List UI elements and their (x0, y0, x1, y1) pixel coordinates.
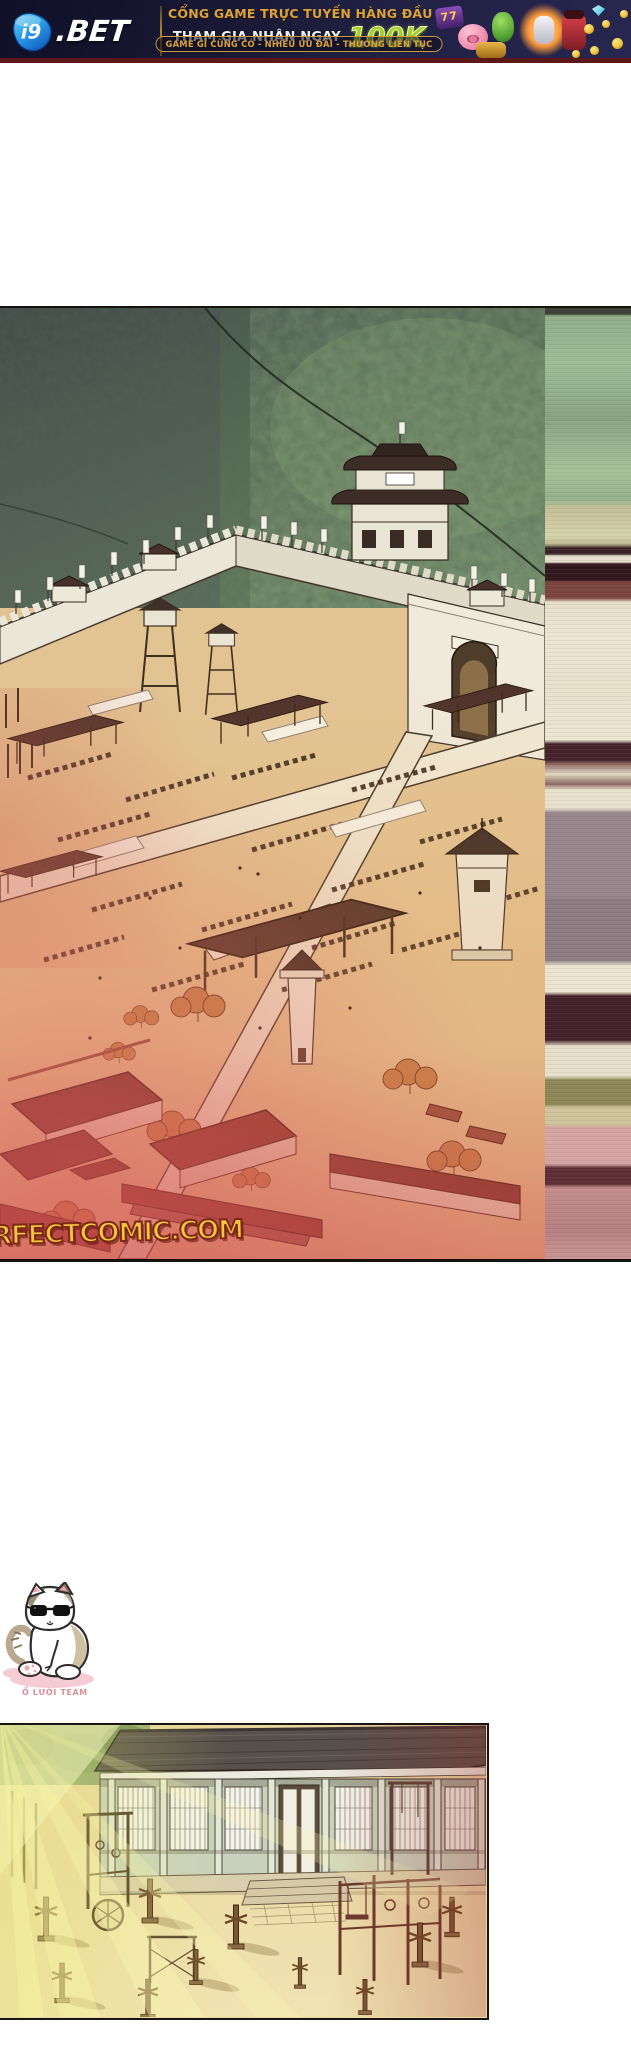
edge-smear (545, 308, 631, 1259)
red-tint (330, 1725, 486, 2017)
banner-headline: CỔNG GAME TRỰC TUYẾN HÀNG ĐẦU (168, 6, 430, 21)
samurai-icon (562, 14, 586, 50)
slot-machine-icon: 77 (435, 5, 465, 30)
color-overlays (0, 668, 545, 1259)
gold-robe-icon (476, 42, 506, 58)
gold-coin-icon (602, 20, 610, 28)
gold-coin-icon (612, 38, 623, 49)
banner-tagline-pill: GAME GÌ CŨNG CÓ - NHIỀU ƯU ĐÃI - THƯỞNG … (156, 36, 443, 53)
casino-collage: 77 (424, 0, 631, 63)
gold-coin-icon (620, 10, 628, 18)
gold-coin-icon (572, 50, 580, 58)
gold-coin-icon (584, 24, 594, 34)
astronaut-icon (534, 16, 554, 44)
banner-text-block: CỔNG GAME TRỰC TUYẾN HÀNG ĐẦU THAM GIA N… (168, 0, 430, 58)
logo-text: .BET (54, 14, 130, 48)
ad-banner[interactable]: i9 .BET CỔNG GAME TRỰC TUYẾN HÀNG ĐẦU TH… (0, 0, 631, 63)
comic-panel-courtyard (0, 1723, 489, 2020)
page: i9 .BET CỔNG GAME TRỰC TUYẾN HÀNG ĐẦU TH… (0, 0, 631, 2063)
gold-coin-icon (590, 46, 599, 55)
mascot-caption: Ổ LƯỜI TEAM (22, 1688, 88, 1697)
svg-text:i9: i9 (21, 20, 41, 43)
banner-bottom-strip (0, 58, 631, 63)
gem-icon (592, 5, 605, 16)
mascot-cat (2, 1582, 106, 1690)
i9bet-logo: i9 .BET (8, 5, 158, 57)
logo-pick-icon: i9 (8, 8, 54, 54)
courtyard-art (0, 1725, 486, 2017)
comic-panel-fortress: RFECTCOMIC.COM (0, 306, 631, 1262)
fortress-art (0, 308, 545, 1259)
green-character-icon (492, 12, 514, 42)
